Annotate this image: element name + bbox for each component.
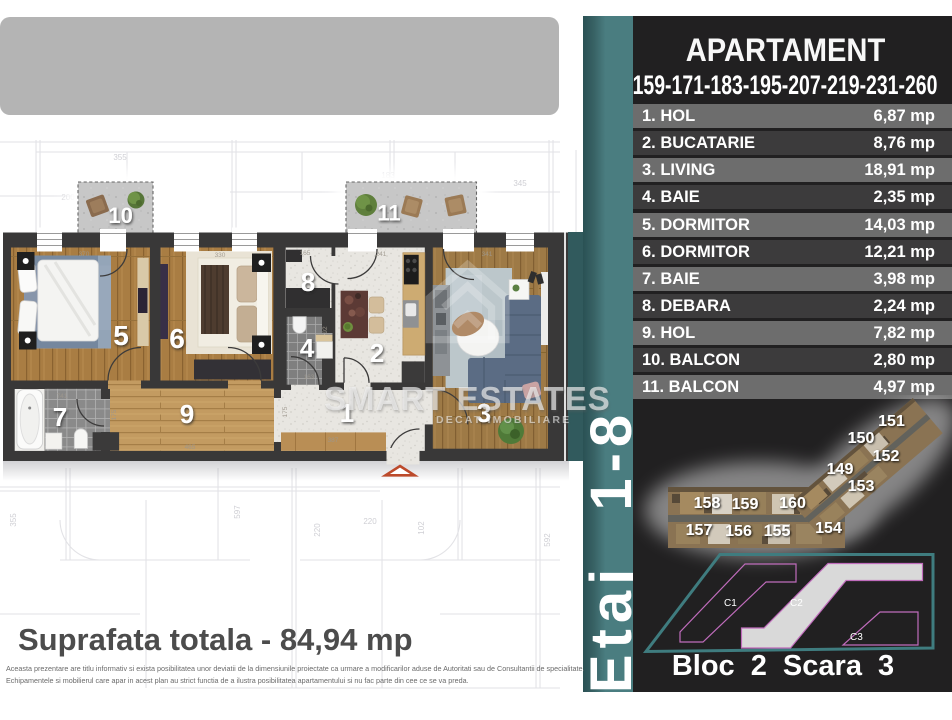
svg-text:160: 160 — [779, 495, 806, 512]
svg-text:330: 330 — [215, 252, 226, 259]
svg-text:153: 153 — [848, 478, 875, 495]
svg-text:387: 387 — [328, 437, 339, 444]
svg-text:741: 741 — [57, 393, 68, 400]
svg-text:C1: C1 — [724, 598, 737, 609]
svg-text:4: 4 — [300, 333, 315, 363]
svg-text:154: 154 — [815, 520, 842, 537]
svg-text:152: 152 — [873, 448, 900, 465]
svg-text:155: 155 — [764, 523, 791, 540]
svg-text:9: 9 — [180, 399, 194, 429]
svg-text:156: 156 — [725, 523, 752, 540]
svg-text:165: 165 — [300, 250, 311, 257]
svg-text:C3: C3 — [850, 632, 863, 643]
svg-text:149: 149 — [827, 461, 854, 478]
svg-text:5: 5 — [113, 320, 129, 351]
svg-text:370: 370 — [79, 251, 90, 258]
svg-text:163: 163 — [304, 374, 315, 381]
svg-text:11: 11 — [377, 201, 400, 226]
svg-text:159: 159 — [732, 496, 759, 513]
svg-text:465: 465 — [185, 444, 196, 451]
svg-text:92: 92 — [322, 326, 329, 334]
svg-text:10: 10 — [108, 203, 132, 228]
svg-text:C2: C2 — [790, 598, 803, 609]
svg-text:8: 8 — [301, 267, 315, 297]
svg-text:7: 7 — [53, 402, 67, 432]
svg-text:157: 157 — [686, 522, 713, 539]
svg-text:6: 6 — [169, 323, 185, 354]
svg-text:175: 175 — [282, 406, 289, 417]
svg-text:2: 2 — [370, 338, 384, 368]
svg-text:150: 150 — [848, 430, 875, 447]
svg-text:158: 158 — [694, 495, 721, 512]
svg-text:175: 175 — [111, 409, 118, 420]
svg-text:151: 151 — [878, 413, 905, 430]
svg-text:241: 241 — [376, 251, 387, 258]
